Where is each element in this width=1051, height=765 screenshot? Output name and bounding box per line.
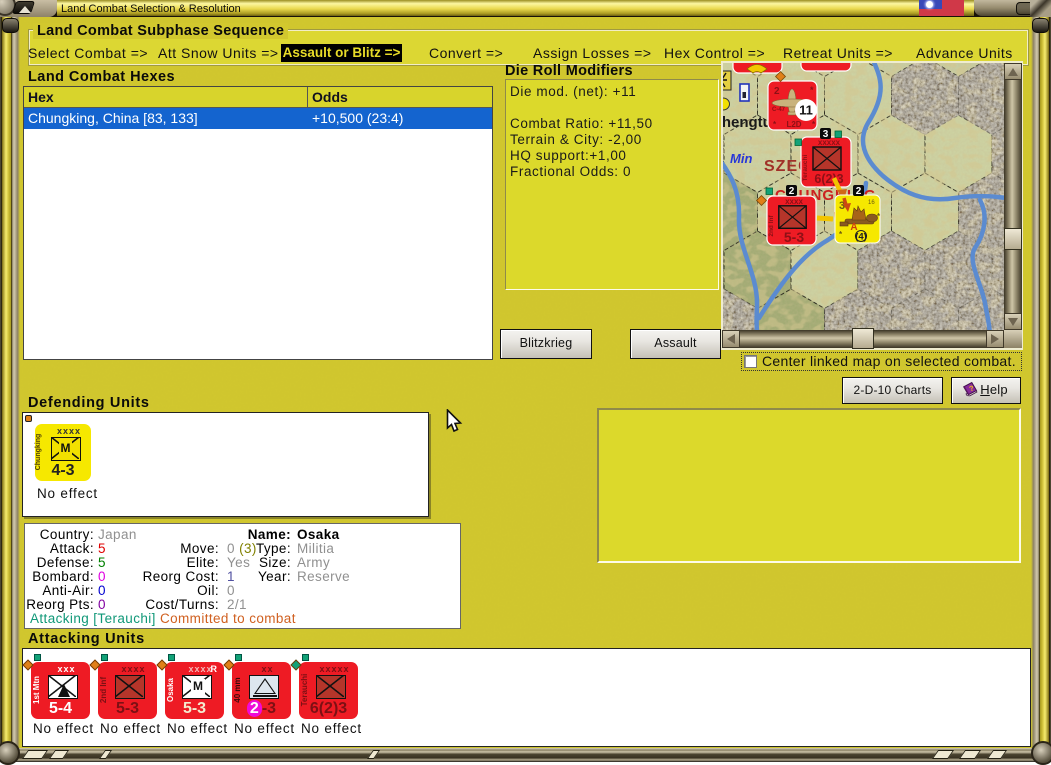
svg-text:(4): (4) [855,232,867,243]
svg-text:xxxx: xxxx [785,197,803,206]
svg-text:5-3: 5-3 [784,229,804,245]
svg-text:2nd Inf: 2nd Inf [768,215,775,237]
svg-text:11: 11 [799,103,813,118]
svg-text:xxxxx: xxxxx [818,138,841,147]
svg-text:*: * [810,85,814,95]
svg-text:2: 2 [789,186,795,197]
svg-text:Terauchi: Terauchi [802,155,809,182]
svg-text:L2D: L2D [786,120,801,129]
svg-text:16: 16 [868,200,875,206]
svg-text:3: 3 [823,129,829,140]
svg-text:6(2)3: 6(2)3 [814,172,843,186]
svg-text:2: 2 [856,186,862,197]
svg-text:2: 2 [774,86,780,97]
svg-text:Min: Min [730,151,752,166]
svg-text:Chengtu: Chengtu [723,114,772,131]
svg-text:C-47: C-47 [772,107,786,113]
